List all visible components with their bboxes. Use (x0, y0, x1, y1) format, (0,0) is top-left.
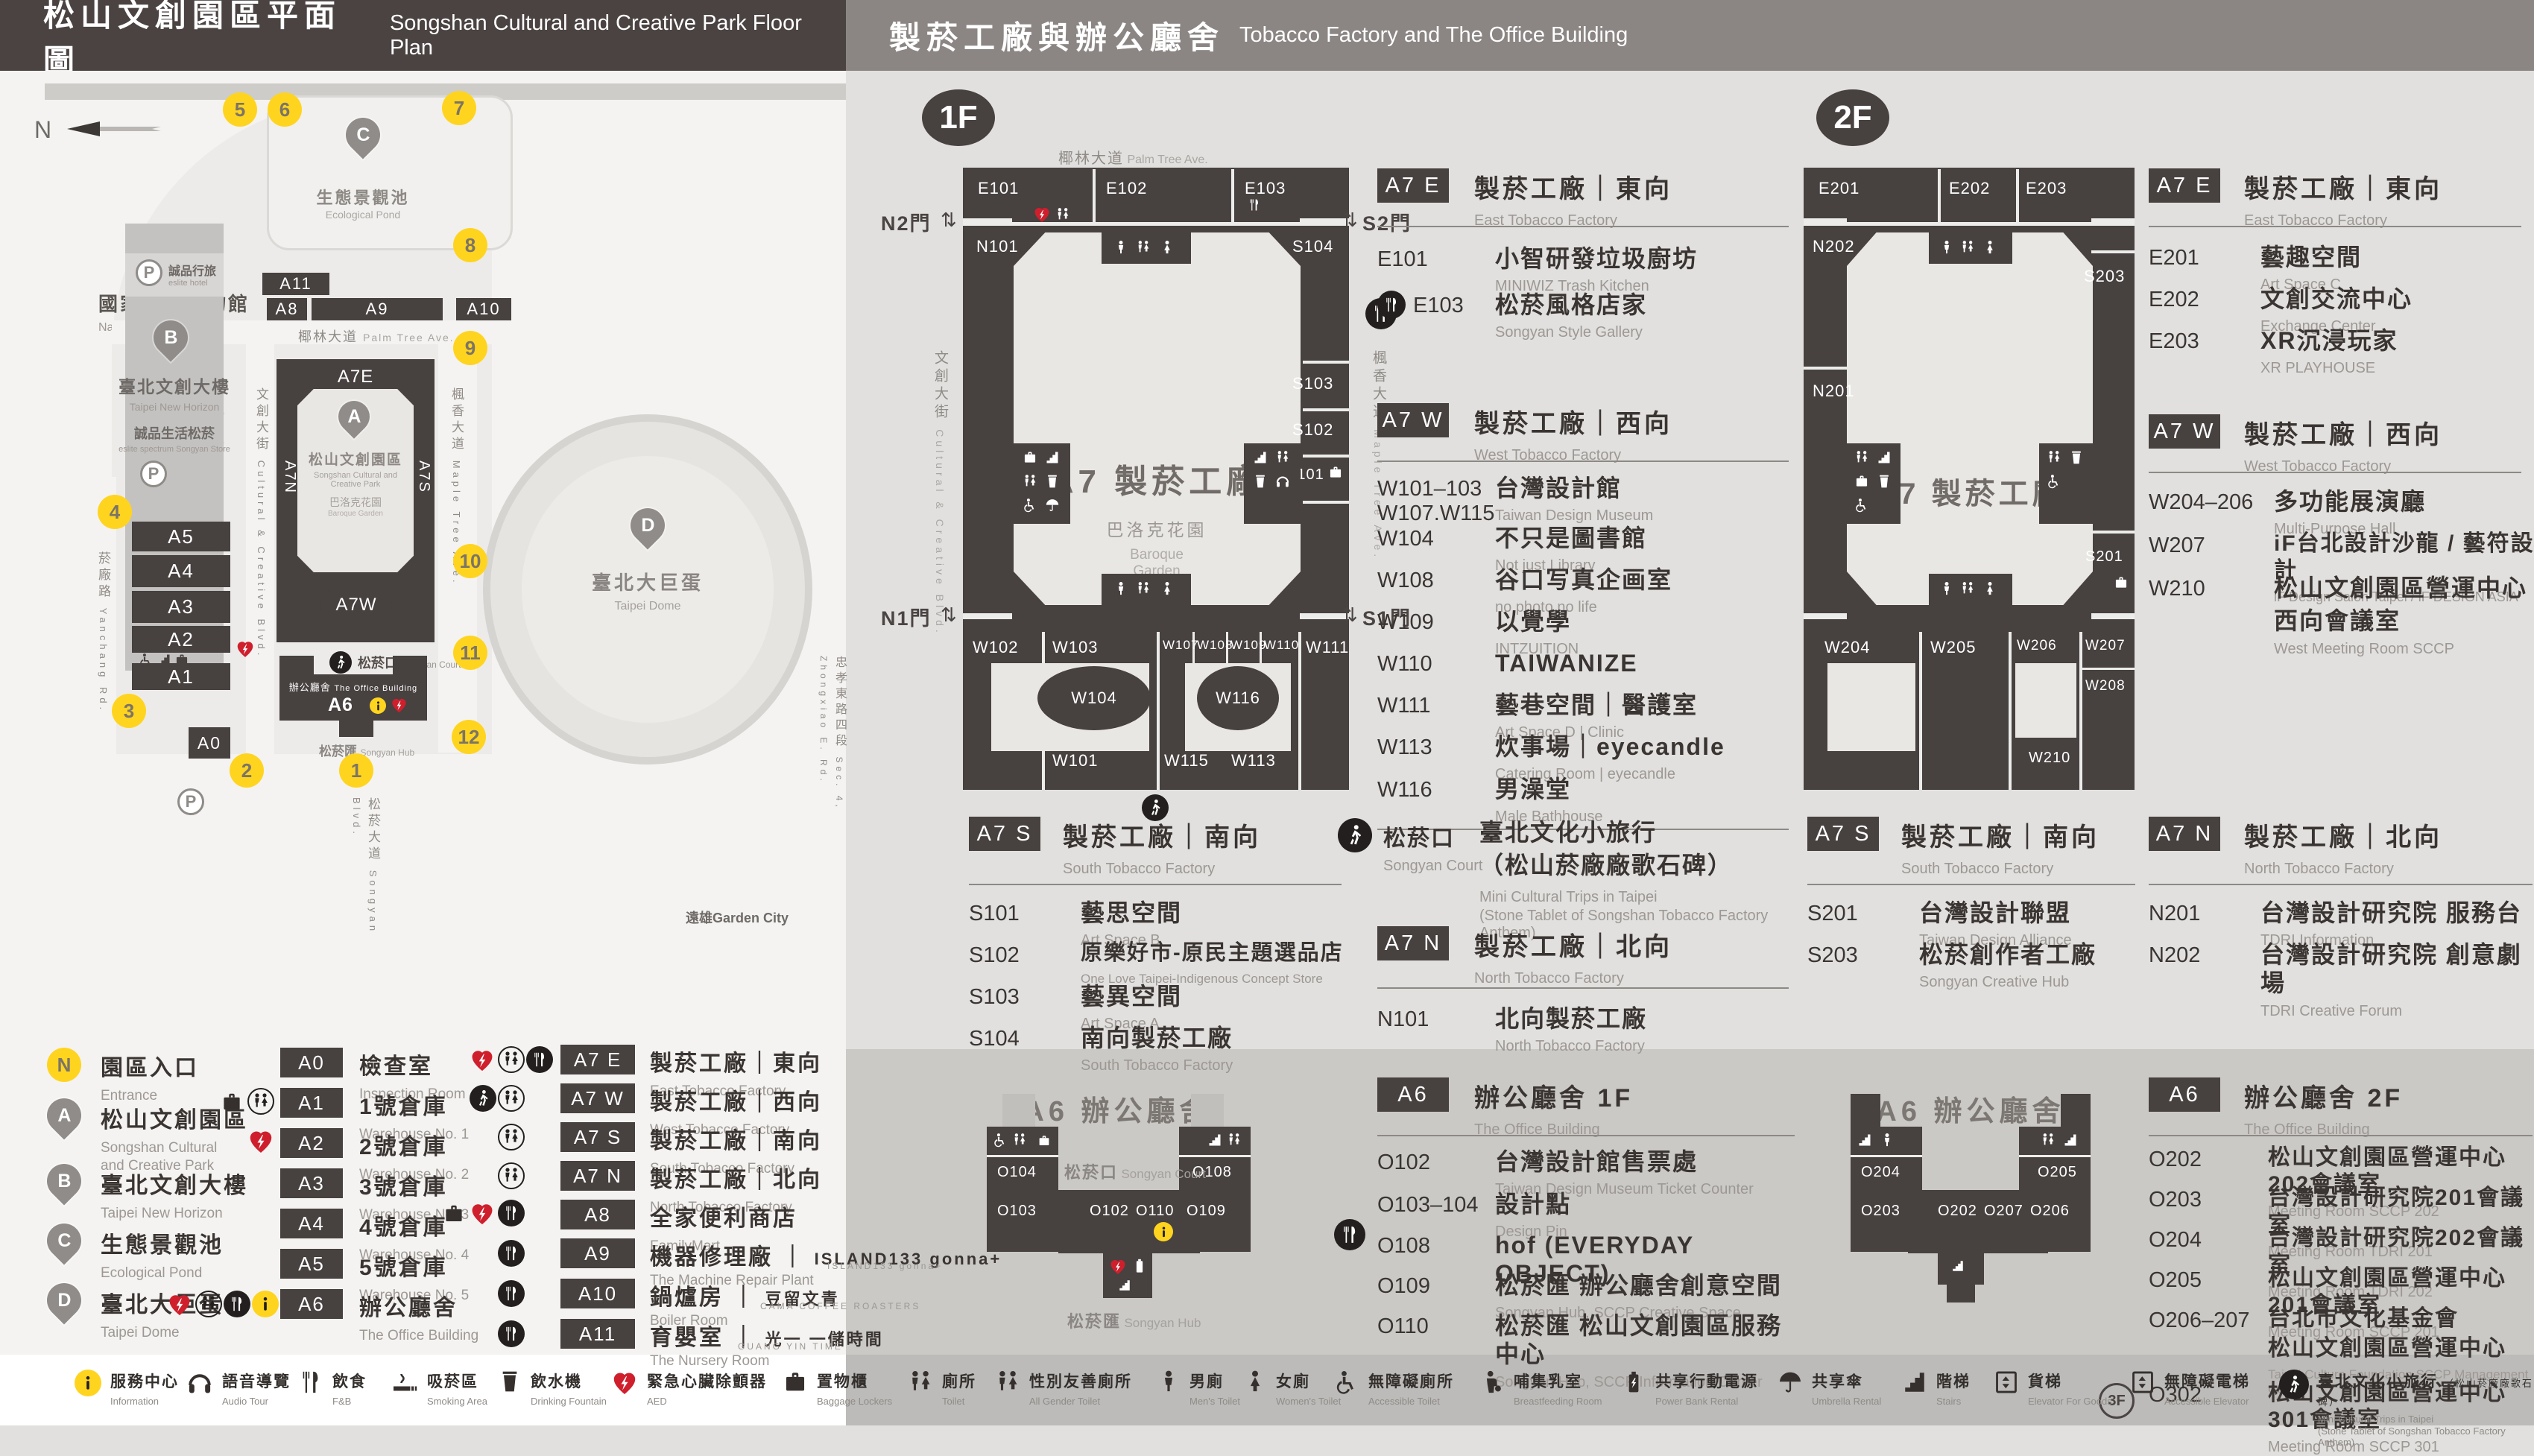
aed-icon (1033, 206, 1051, 224)
f2-a7n-header: A7 N製菸工廠｜北向North Tobacco Factory (2149, 817, 2442, 878)
street-zhongxiao-label: 忠孝東路四段 Sec. 4, Zhongxiao E. Rd. (817, 656, 848, 879)
room-row-w210: W210松山文創園區營運中心西向會議室West Meeting Room SCC… (2149, 574, 2529, 658)
info-icon (370, 697, 386, 714)
f1-a7e-header: A7 E製菸工廠｜東向East Tobacco Factory (1377, 168, 1672, 230)
walk-icon (470, 1085, 496, 1112)
locker-icon (2114, 575, 2129, 590)
f1-line (1298, 632, 1301, 790)
entrance-4: 4 (98, 495, 132, 529)
toilet-icon (498, 1162, 525, 1189)
f1-line (1157, 632, 1160, 790)
a6-1f-tab (1002, 1094, 1035, 1127)
legend-a11: 育嬰室 ｜ 光一 一儲時間GUANG YIN TIMEThe Nursery R… (650, 1319, 884, 1370)
toilet-icon (1275, 450, 1290, 465)
toilet-icon (1960, 240, 1975, 255)
f1-room-w101: W101 (1052, 751, 1098, 770)
legend-item-lockers: 置物櫃Baggage Lockers (783, 1370, 892, 1407)
legend-item-information: 服務中心Information (75, 1370, 179, 1407)
dome-label: 臺北大巨蛋Taipei Dome (551, 568, 745, 613)
f2-patch (2015, 663, 2076, 738)
women-icon (1160, 581, 1175, 596)
f1-gate-gap (963, 613, 1012, 619)
fountain-icon (498, 1370, 522, 1393)
toilet-icon (1227, 1133, 1242, 1148)
aed-icon (391, 697, 408, 714)
f1-room-s103: S103 (1292, 374, 1333, 393)
f2-line (1804, 367, 1847, 370)
divider (1377, 226, 1789, 227)
entrance-9: 9 (453, 331, 487, 365)
a6-room-o204: O204 (1861, 1164, 1900, 1181)
floor-1f-badge: 1F (922, 89, 995, 146)
stairs-icon (1877, 450, 1892, 465)
f2-line (2016, 169, 2019, 222)
header-right: 製菸工廠與辦公廳舍 Tobacco Factory and The Office… (846, 0, 2534, 71)
f1-line (1303, 455, 1349, 458)
info-icon (252, 1291, 279, 1317)
walk-icon (2279, 1370, 2309, 1399)
locker-icon (443, 1203, 465, 1225)
new-horizon-label: 臺北文創大樓Taipei New Horizon誠品生活松菸eslite spe… (115, 373, 234, 454)
building-a5: A5 (132, 522, 230, 551)
toilet-icon (498, 1085, 525, 1112)
power-icon (1131, 1258, 1148, 1274)
legend-a5-badge: A5 (280, 1249, 343, 1279)
building-a3: A3 (132, 591, 230, 623)
locker-icon (174, 653, 189, 668)
room-row-s104: S104南向製菸工廠South Tobacco Factory (969, 1024, 1349, 1074)
breastfeeding-icon (1479, 1370, 1505, 1395)
locker-icon (1037, 1134, 1051, 1148)
f2-line (2082, 668, 2135, 670)
legend-item-dining: 飲食F&B (298, 1370, 367, 1407)
men-icon (1113, 240, 1128, 255)
entrance-8: 8 (453, 228, 487, 262)
divider (2149, 1135, 2533, 1136)
f1-room-e102: E102 (1106, 179, 1147, 198)
a7e-map-label: A7E (318, 367, 393, 387)
freight-elevator-icon (1994, 1370, 2019, 1395)
room-row-n101: N101北向製菸工廠North Tobacco Factory (1377, 1004, 1789, 1055)
building-a2: A2 (132, 626, 230, 653)
a6-2f-tabtop (2061, 1094, 2091, 1128)
aed-icon (236, 639, 255, 659)
legend-a4-badge: A4 (280, 1209, 343, 1238)
legend-item-breastfeeding: 哺集乳室Breastfeeding Room (1479, 1370, 1602, 1407)
f1-street-top-label: 椰林大道 Palm Tree Ave. (1058, 146, 1208, 168)
aed-icon (1109, 1258, 1127, 1276)
legend-a6: 辦公廳舍The Office Building (359, 1289, 478, 1344)
f1-a7s-header: A7 S製菸工廠｜南向South Tobacco Factory (969, 817, 1261, 878)
f1-line (963, 222, 1349, 226)
a6-map-label: A6 (328, 694, 353, 716)
walk-icon (329, 651, 352, 674)
street-songyan-blvd-label: 松菸大道 Songyan Blvd. (349, 797, 382, 961)
dining-icon (526, 1046, 553, 1073)
toilet-icon (2041, 1133, 2056, 1148)
dining-icon (498, 1240, 525, 1267)
f2-line (1919, 632, 1922, 790)
dining-icon (298, 1370, 323, 1395)
legend-a7e-badge: A7 E (560, 1045, 635, 1074)
street-palm-ave-label: 椰林大道 Palm Tree Ave. (298, 326, 455, 346)
a6-room-o206: O206 (2030, 1203, 2070, 1220)
toilet-icon (1854, 450, 1869, 465)
cup-icon (1045, 474, 1060, 489)
legend-a3-badge: A3 (280, 1168, 343, 1198)
toilet-icon (1960, 581, 1975, 596)
toilet-icon (908, 1370, 933, 1395)
a6-line (1851, 1155, 1922, 1157)
page-title-right-zh: 製菸工廠與辦公廳舍 (889, 13, 1225, 58)
f2-room-w208: W208 (2085, 678, 2126, 694)
f2-room-e201: E201 (1819, 179, 1860, 198)
f1-room-e101: E101 (978, 179, 1019, 198)
f2-gate-gap (2091, 218, 2135, 224)
a6-1f-tab (1191, 1094, 1224, 1127)
entrance-10: 10 (453, 544, 487, 578)
stairs-icon (1207, 1133, 1222, 1148)
men-icon (1939, 240, 1954, 255)
cup-icon (2069, 450, 2084, 465)
locker-icon (1854, 474, 1869, 489)
eslite-hotel-label: 誠品行旅eslite hotel (168, 261, 216, 288)
compass-north-label: N (34, 116, 51, 144)
f2-line (2091, 250, 2135, 253)
a6-2f-center (1908, 1190, 2048, 1253)
toilet-icon (1023, 474, 1037, 489)
room-row-w110: W110TAIWANIZE (1377, 649, 1789, 677)
a6-room-o110: O110 (1136, 1203, 1174, 1220)
f2-gate-gap (1804, 218, 1847, 224)
entrance-7: 7 (442, 91, 476, 125)
building-a10: A10 (456, 298, 511, 320)
legend-entrance: 園區入口Entrance (101, 1049, 199, 1104)
locker-icon (783, 1370, 808, 1395)
legend-item-umbrella: 共享傘Umbrella Rental (1778, 1370, 1881, 1407)
legend-a10-badge: A10 (560, 1279, 635, 1308)
legend-a7n-badge: A7 N (560, 1161, 635, 1191)
dining-icon (498, 1280, 525, 1307)
a6-2f-stub2 (1947, 1285, 1975, 1303)
f1-room-w110: W110 (1264, 638, 1299, 653)
legend-a11-badge: A11 (560, 1319, 635, 1349)
f2-room-w206: W206 (2017, 638, 2057, 654)
wheelchair-icon (2047, 474, 2061, 489)
legend-item-stairs: 階梯Stairs (1902, 1370, 1971, 1407)
park-center-label: 松山文創園區Songshan Cultural andCreative Park… (296, 449, 415, 518)
f1-room-s104: S104 (1292, 237, 1333, 256)
f1-oval-w116: W116 (1197, 666, 1279, 730)
stairs-icon (2063, 1133, 2078, 1148)
cup-icon (1877, 474, 1892, 489)
wheelchair-icon (993, 1133, 1008, 1148)
f1-line (1303, 361, 1349, 364)
legend-item-power-bank: 共享行動電源Power Bank Rental (1621, 1370, 1758, 1407)
parking-icon-mid: P (140, 460, 167, 487)
power-bank-icon (1621, 1370, 1646, 1395)
a6-court-label: 松菸口 Songyan Court (1064, 1159, 1206, 1183)
ecological-pond (267, 95, 513, 250)
aed-icon (470, 1201, 495, 1226)
building-a6-stub (339, 721, 373, 737)
toilet-icon (2047, 450, 2061, 465)
header-left: 松山文創園區平面圖 Songshan Cultural and Creative… (0, 0, 846, 71)
floor-2f-badge: 2F (1816, 89, 1889, 146)
toilet-icon (1136, 240, 1151, 255)
legend-item-accessible-toilet: 無障礙廁所Accessible Toilet (1334, 1370, 1454, 1407)
songyan-court-desc: 臺北文化小旅行（松山菸廠廠歌石碑）Mini Cultural Trips in … (1479, 818, 1800, 942)
f2-room-e203: E203 (2026, 179, 2067, 198)
gate-arrow: ⇅ (1342, 209, 1358, 232)
stairs-icon (1253, 450, 1268, 465)
entrance-3: 3 (112, 694, 146, 728)
legend-item-smoking: 吸菸區Smoking Area (391, 1370, 487, 1407)
building-a11: A11 (262, 273, 329, 295)
entrance-5: 5 (223, 92, 257, 127)
f1-line (1303, 408, 1349, 411)
f1-room-w113: W113 (1231, 751, 1276, 770)
street-yanchang-label: 菸廠路 Yanchang Rd. (94, 551, 113, 760)
divider (1807, 884, 2135, 885)
a6-room-o103: O103 (997, 1203, 1037, 1220)
all-gender-toilet-icon (995, 1370, 1020, 1395)
page-title-left-en: Songshan Cultural and Creative Park Floo… (390, 11, 846, 60)
stairs-icon (1951, 1259, 1965, 1273)
a6-room-o109: O109 (1187, 1203, 1226, 1220)
umbrella-icon (1045, 498, 1060, 513)
divider (1377, 1135, 1795, 1136)
stairs-icon (1857, 1133, 1872, 1148)
men-icon (1113, 581, 1128, 596)
legend-item-fountain: 飲水機Drinking Fountain (498, 1370, 607, 1407)
headphones-icon (186, 1370, 213, 1396)
a6-1f-center (1058, 1190, 1200, 1253)
entrance-2: 2 (230, 753, 264, 788)
building-a9: A9 (312, 298, 443, 320)
f2-room-w210: W210 (2029, 750, 2070, 767)
building-a8: A8 (267, 298, 307, 320)
dining-icon (1334, 1219, 1365, 1250)
a6-2f-tabtop (1851, 1094, 1880, 1128)
gate-n2: N2門 (881, 207, 932, 236)
divider (2149, 884, 2533, 885)
f2-room-n202: N202 (1813, 237, 1855, 256)
a6-room-o205: O205 (2038, 1164, 2077, 1181)
f1-room-w111: W111 (1306, 638, 1349, 657)
f1-room-e103: E103 (1245, 179, 1286, 198)
divider (969, 884, 1342, 885)
building-a0: A0 (189, 727, 230, 759)
legend-a2-badge: A2 (280, 1128, 343, 1158)
walk-icon (1338, 818, 1372, 852)
page-title-right-en: Tobacco Factory and The Office Building (1239, 23, 1628, 48)
f2-room-n201: N201 (1813, 382, 1855, 401)
toilet-icon (1136, 581, 1151, 596)
f1-room-w108: W108 (1197, 638, 1233, 653)
f2-line (1938, 169, 1941, 222)
a7w-map-pill: A7W (320, 589, 392, 621)
room-row-w101: W101–103W107.W115台灣設計館Taiwan Design Muse… (1377, 474, 1789, 526)
building-a4: A4 (132, 555, 230, 587)
legend-item-accessible-elevator: 無障礙電梯Accessible Elevator (2130, 1370, 2250, 1407)
stairs-icon (1045, 450, 1060, 465)
f2-a7e-header: A7 E製菸工廠｜東向East Tobacco Factory (2149, 168, 2442, 230)
wheelchair-icon (139, 653, 154, 668)
a7s-map-label: A7S (415, 460, 432, 493)
legend-item-aed: 緊急心臟除顫器AED (611, 1370, 767, 1407)
wheelchair-icon (1023, 498, 1037, 513)
smoking-icon (391, 1370, 418, 1396)
headphones-icon (1275, 474, 1290, 489)
a6-office-label: 辦公廳舍 The Office Building (279, 680, 427, 694)
f1-room-w115: W115 (1164, 751, 1209, 770)
songyan-court-entry: 松菸口Songyan Court (1383, 820, 1482, 875)
f1-line (1303, 501, 1349, 504)
legend-item-freight-elevator: 貨梯Elevator For Goods (1994, 1370, 2112, 1407)
f2-gate-gap (2091, 613, 2135, 619)
f2-a6-header: A6辦公廳舍 2FThe Office Building (2149, 1077, 2403, 1139)
toilet-icon (195, 1291, 222, 1317)
legend-item-womens-toilet: 女廁Women's Toilet (1243, 1370, 1341, 1407)
f2-room-w207: W207 (2085, 638, 2126, 654)
a6-room-o203: O203 (1861, 1203, 1900, 1220)
divider (1377, 987, 1789, 989)
a6-hub-label: 松菸匯 Songyan Hub (1067, 1308, 1201, 1332)
dining-icon (1248, 198, 1261, 212)
entrance-1: 1 (339, 753, 373, 788)
f1-room-w107: W107 (1163, 638, 1198, 653)
f2-line (2091, 531, 2135, 534)
room-row-s102: S102原樂好市-原民主題選品店One Love Taipei-Indigeno… (969, 940, 1349, 987)
men-icon (1157, 1370, 1181, 1393)
garden-city-label: 遠雄Garden City (686, 908, 789, 927)
f1-room-w109: W109 (1230, 638, 1266, 653)
stairs-icon (157, 653, 171, 668)
legend-item-all-gender-toilet: 性別友善廁所All Gender Toilet (995, 1370, 1132, 1407)
f2-room-s201: S201 (2085, 548, 2123, 566)
gate-arrow: ⇅ (941, 209, 957, 232)
parking-icon-hotel: P (136, 259, 162, 286)
f1-line (1093, 169, 1096, 222)
f2-gate-gap (1804, 613, 1847, 619)
legend-entrance-symbol: N (47, 1048, 81, 1082)
aed-icon (470, 1048, 495, 1073)
f1-room-w102: W102 (973, 638, 1018, 657)
gate-n1: N1門 (881, 602, 932, 631)
aed-icon (247, 1128, 274, 1155)
f2-map-courtyard (1847, 232, 2093, 605)
f2-patch (1827, 663, 1915, 751)
f1-gate-gap (963, 218, 1012, 224)
men-icon (1939, 581, 1954, 596)
f1-a7w-header: A7 W製菸工廠｜西向West Tobacco Factory (1377, 403, 1672, 464)
entrance-11: 11 (453, 636, 487, 670)
women-icon (1982, 240, 1997, 255)
a6-line (987, 1155, 1058, 1157)
men-icon (1880, 1133, 1895, 1148)
women-icon (1243, 1370, 1267, 1393)
wheelchair-icon (1854, 498, 1869, 513)
building-a6-wing-r (393, 656, 427, 675)
locker-icon (1328, 465, 1343, 480)
women-icon (1160, 240, 1175, 255)
legend-item-cultural-trips: 臺北文化小旅行 （松山菸廠廠歌石碑）Mini Cultural Trips in… (2279, 1370, 2534, 1448)
f2-line (1804, 222, 2135, 226)
f2-room-w205: W205 (1930, 638, 1976, 657)
legend-a7w-badge: A7 W (560, 1083, 635, 1113)
f1-a7n-header: A7 N製菸工廠｜北向North Tobacco Factory (1377, 926, 1672, 987)
legend-place-c: 生態景觀池Ecological Pond (101, 1226, 224, 1282)
stairs-icon (1118, 1279, 1131, 1292)
room-row-n202: N202台灣設計研究院 創意劇場TDRI Creative Forum (2149, 940, 2533, 1020)
legend-item-audio-tour: 語音導覽Audio Tour (186, 1370, 291, 1407)
f2-room-s203: S203 (2084, 267, 2125, 286)
f2-a7w-header: A7 W製菸工廠｜西向West Tobacco Factory (2149, 414, 2442, 475)
f1-line (1231, 169, 1234, 222)
entrance-12: 12 (452, 720, 486, 754)
f2-line (2009, 632, 2012, 790)
f2-a7s-header: A7 S製菸工廠｜南向South Tobacco Factory (1807, 817, 2099, 878)
page-title-left-zh: 松山文創園區平面圖 (43, 0, 375, 81)
f2-room-e202: E202 (1949, 179, 1990, 198)
f1-oval-w104: W104 (1037, 666, 1151, 730)
room-row-e103: E103松菸風格店家Songyan Style Gallery (1377, 291, 1789, 341)
locker-icon (1023, 450, 1037, 465)
parking-icon-south: P (177, 788, 204, 815)
dining-icon (498, 1200, 525, 1226)
a6-line (1179, 1155, 1251, 1157)
toilet-icon (1012, 1133, 1027, 1148)
dining-icon (498, 1320, 525, 1347)
legend-a1-badge: A1 (280, 1088, 343, 1118)
divider (2149, 472, 2521, 473)
dining-icon (224, 1291, 250, 1317)
divider (2149, 226, 2521, 227)
legend-a7s-badge: A7 S (560, 1122, 635, 1152)
cup-icon (1253, 474, 1268, 489)
legend-a6-badge: A6 (280, 1289, 343, 1319)
a6-line (2019, 1155, 2091, 1157)
aed-icon (611, 1370, 638, 1396)
legend-item-mens-toilet: 男廁Men's Toilet (1157, 1370, 1240, 1407)
legend-a8-badge: A8 (560, 1200, 635, 1229)
toilet-icon (247, 1088, 274, 1115)
f1-street-left-label: 文創大街 Cultural & Creative Blvd. (930, 350, 950, 663)
f2-room-w204: W204 (1824, 638, 1870, 657)
locker-icon (221, 1091, 243, 1113)
f2-line (2079, 632, 2082, 790)
legend-place-b: 臺北文創大樓Taipei New Horizon (101, 1167, 248, 1222)
wheelchair-icon (1334, 1370, 1359, 1395)
umbrella-icon (1778, 1370, 1803, 1395)
a6-room-o207: O207 (1984, 1203, 2023, 1220)
a6-room-o202: O202 (1938, 1203, 1977, 1220)
f1-room-n101: N101 (976, 237, 1019, 256)
women-icon (1982, 581, 1997, 596)
compass-arrow-icon (66, 121, 162, 137)
room-row-e203: E203XR沉浸玩家XR PLAYHOUSE (2149, 326, 2529, 377)
info-icon (1154, 1222, 1173, 1241)
f1-room-s102: S102 (1292, 420, 1333, 440)
divider (1377, 460, 1789, 462)
a6-room-o102: O102 (1090, 1203, 1129, 1220)
gate-arrow: ⇅ (1342, 604, 1358, 627)
toilet-icon (1055, 207, 1070, 222)
road-south (112, 754, 492, 781)
f1-a6-header: A6辦公廳舍 1FThe Office Building (1377, 1077, 1633, 1139)
room-row-e101: E101小智研發垃圾廚坊MINIWIZ Trash Kitchen (1377, 244, 1789, 295)
